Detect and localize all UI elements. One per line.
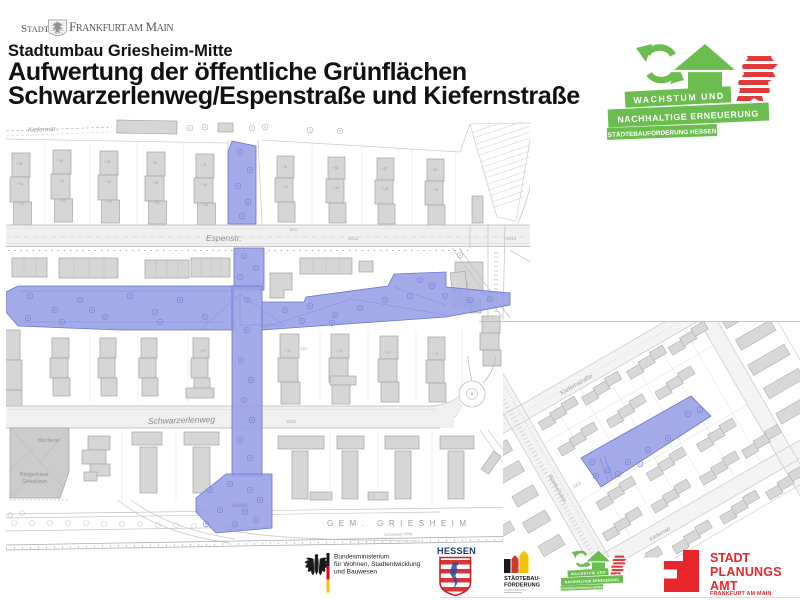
- svg-text:1612: 1612: [286, 419, 297, 424]
- svg-text:+ 52: + 52: [281, 165, 288, 169]
- svg-text:+ 52: + 52: [201, 183, 208, 187]
- svg-text:für Wohnen, Stadtentwicklung: für Wohnen, Stadtentwicklung: [334, 561, 421, 568]
- svg-text:+ 52: + 52: [332, 166, 339, 170]
- svg-text:+ 52: + 52: [282, 185, 289, 189]
- svg-text:Espenstr.: Espenstr.: [206, 233, 242, 243]
- svg-text:+ 52: + 52: [106, 200, 113, 204]
- svg-text:+ 52: + 52: [382, 187, 389, 191]
- svg-text:Bürgerhaus: Bürgerhaus: [20, 472, 49, 478]
- svg-text:+ 52: + 52: [153, 201, 160, 205]
- svg-text:+ 52: + 52: [202, 203, 209, 207]
- svg-text:Bücherei: Bücherei: [38, 438, 60, 444]
- svg-text:HESSEN: HESSEN: [437, 546, 476, 556]
- svg-text:+ 47: + 47: [285, 349, 292, 353]
- svg-text:Spielpl.: Spielpl.: [232, 502, 249, 509]
- svg-text:+ 52: + 52: [152, 181, 159, 185]
- svg-text:+ 52: + 52: [151, 161, 158, 165]
- svg-text:+ 52: + 52: [381, 167, 388, 171]
- svg-text:und Bauwesen: und Bauwesen: [334, 569, 377, 576]
- svg-text:+ 52: + 52: [57, 159, 64, 163]
- svg-text:+ 52: + 52: [431, 168, 438, 172]
- svg-text:+ 47: + 47: [385, 351, 392, 355]
- svg-text:800: 800: [290, 227, 297, 232]
- svg-text:Kiefernstr.: Kiefernstr.: [28, 126, 58, 134]
- svg-text:167: 167: [200, 348, 208, 353]
- svg-text:+ 47: + 47: [336, 349, 343, 353]
- svg-text:GEM. GRIESHEIM: GEM. GRIESHEIM: [327, 519, 472, 528]
- svg-text:+ 52: + 52: [333, 186, 340, 190]
- svg-text:STÄDTEBAU-: STÄDTEBAU-: [504, 575, 540, 582]
- svg-text:+ 52: + 52: [432, 188, 439, 192]
- svg-text:167: 167: [300, 346, 308, 351]
- svg-text:2013: 2013: [506, 236, 517, 241]
- svg-text:2012: 2012: [348, 236, 359, 241]
- svg-text:+ 52: + 52: [105, 180, 112, 184]
- svg-text:STADT: STADT: [710, 551, 750, 565]
- svg-text:+ 52: + 52: [200, 163, 207, 167]
- svg-text:+ 52: + 52: [59, 199, 66, 203]
- svg-text:Schwarzer Weg: Schwarzer Weg: [384, 531, 413, 537]
- svg-text:+ 52: + 52: [58, 179, 65, 183]
- svg-text:Bundesministerium: Bundesministerium: [334, 554, 389, 561]
- svg-text:+ 52: + 52: [16, 162, 23, 166]
- svg-text:+ 52: + 52: [18, 202, 25, 206]
- svg-text:Griesheim: Griesheim: [22, 479, 47, 485]
- svg-text:+ 47: + 47: [432, 352, 439, 356]
- svg-text:Schwarzerlenweg: Schwarzerlenweg: [148, 414, 216, 426]
- svg-text:FÖRDERUNG: FÖRDERUNG: [504, 582, 540, 589]
- svg-text:PLANUNGS: PLANUNGS: [710, 565, 782, 579]
- svg-text:FRANKFURT AM MAIN: FRANKFURT AM MAIN: [710, 591, 772, 597]
- svg-text:+ 52: + 52: [17, 182, 24, 186]
- svg-text:+ 52: + 52: [104, 160, 111, 164]
